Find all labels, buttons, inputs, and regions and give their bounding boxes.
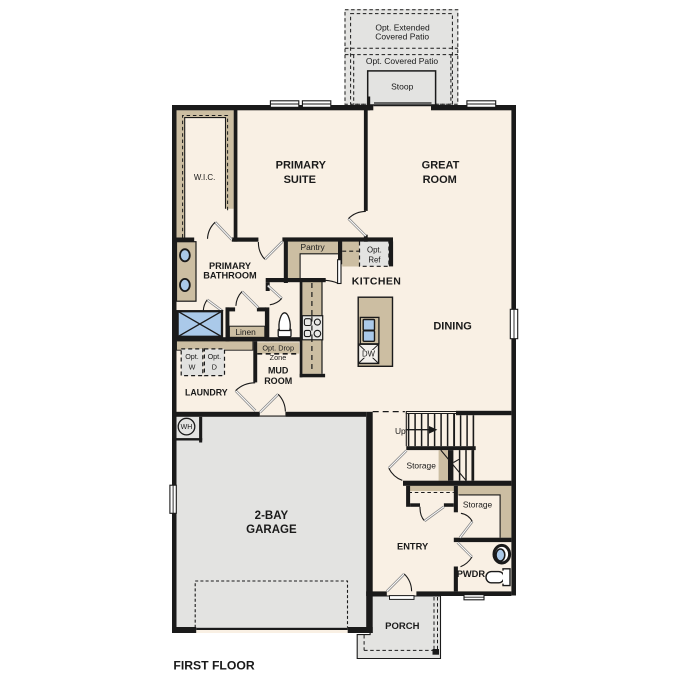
svg-text:SUITE: SUITE [284,174,316,186]
svg-text:W.I.C.: W.I.C. [194,173,215,182]
svg-text:Linen: Linen [235,327,256,337]
svg-text:Opt. Covered Patio: Opt. Covered Patio [366,56,439,66]
svg-text:Stoop: Stoop [391,82,413,92]
svg-text:BATHROOM: BATHROOM [203,271,257,281]
svg-text:PRIMARY: PRIMARY [276,160,327,172]
svg-text:W: W [189,363,196,372]
svg-text:PRIMARY: PRIMARY [209,261,251,271]
svg-text:Opt.: Opt. [185,352,199,361]
svg-text:PWDR: PWDR [457,569,486,579]
svg-text:DINING: DINING [433,320,472,332]
svg-text:Ref: Ref [368,255,381,264]
svg-text:Covered Patio: Covered Patio [375,31,429,41]
svg-text:MUD: MUD [268,365,289,375]
svg-text:Zone: Zone [270,353,287,362]
svg-text:2-BAY: 2-BAY [255,510,289,522]
svg-text:DW: DW [362,350,376,359]
svg-text:Opt. Drop: Opt. Drop [262,344,294,353]
svg-text:KITCHEN: KITCHEN [352,276,401,288]
svg-text:D: D [212,363,217,372]
svg-text:Pantry: Pantry [300,242,325,252]
svg-text:LAUNDRY: LAUNDRY [185,388,228,398]
svg-text:Up: Up [395,426,406,436]
svg-text:PORCH: PORCH [385,621,419,632]
svg-text:Opt.: Opt. [367,245,382,254]
svg-text:Opt.: Opt. [208,352,222,361]
svg-text:WH: WH [181,424,193,431]
svg-text:ROOM: ROOM [264,376,292,386]
svg-text:Storage: Storage [407,461,437,471]
svg-text:ROOM: ROOM [423,174,457,186]
svg-text:GREAT: GREAT [422,160,460,172]
svg-text:ENTRY: ENTRY [397,542,429,552]
svg-text:Storage: Storage [463,500,493,510]
svg-text:FIRST FLOOR: FIRST FLOOR [173,658,254,672]
svg-text:GARAGE: GARAGE [246,524,297,536]
